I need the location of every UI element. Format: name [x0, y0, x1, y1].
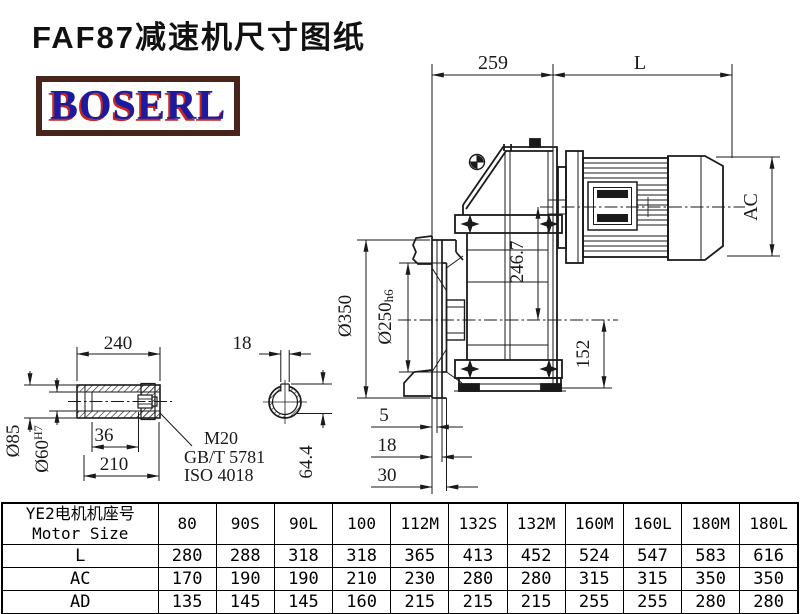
table-cell: 255 — [623, 591, 681, 614]
table-cell: 413 — [449, 545, 507, 568]
dim-step-5: 5 — [379, 405, 389, 426]
column-header: 160M — [565, 503, 623, 545]
table-corner-header: YE2电机机座号Motor Size — [2, 503, 158, 545]
header-en: Motor Size — [3, 524, 158, 544]
table-cell: 280 — [682, 591, 740, 614]
dim-210: 210 — [100, 454, 129, 475]
row-header: AC — [2, 568, 158, 591]
table-cell: 616 — [740, 545, 798, 568]
dim-246-7: 246.7 — [507, 241, 528, 284]
dim-step-30: 30 — [378, 465, 397, 486]
column-header: 132M — [507, 503, 565, 545]
table-cell: 315 — [623, 568, 681, 591]
dim-bore: Ø60H7 — [31, 425, 53, 472]
table-cell: 160 — [333, 591, 391, 614]
dim-step-18: 18 — [378, 435, 397, 456]
table-cell: 280 — [449, 568, 507, 591]
table-cell: 210 — [333, 568, 391, 591]
column-header: 90L — [274, 503, 332, 545]
row-header: L — [2, 545, 158, 568]
table-cell: 215 — [391, 591, 449, 614]
table-cell: 452 — [507, 545, 565, 568]
table-row: AC170190190210230280280315315350350 — [2, 568, 798, 591]
table-cell: 583 — [682, 545, 740, 568]
dim-sleeve-od: Ø85 — [3, 425, 24, 458]
table-cell: 350 — [682, 568, 740, 591]
table-cell: 318 — [333, 545, 391, 568]
table-cell: 280 — [740, 591, 798, 614]
dim-259: 259 — [478, 52, 508, 74]
table-cell: 135 — [158, 591, 216, 614]
dim-spigot: Ø250h6 — [375, 289, 396, 345]
table-cell: 170 — [158, 568, 216, 591]
dim-AC: AC — [740, 193, 762, 221]
dim-key-width: 18 — [233, 333, 252, 354]
dim-L: L — [634, 52, 646, 74]
column-header: 160L — [623, 503, 681, 545]
table-cell: 145 — [216, 591, 274, 614]
shaft-cross-section — [263, 380, 307, 424]
dimension-labels: 259 L AC 246.7 152 Ø350 Ø250h6 5 18 30 2… — [3, 52, 762, 486]
column-header: 132S — [449, 503, 507, 545]
table-cell: 315 — [565, 568, 623, 591]
table-cell: 350 — [740, 568, 798, 591]
motor-terminal-box — [588, 182, 637, 230]
table-cell: 230 — [391, 568, 449, 591]
column-header: 100 — [333, 503, 391, 545]
table-cell: 288 — [216, 545, 274, 568]
table-cell: 365 — [391, 545, 449, 568]
column-header: 90S — [216, 503, 274, 545]
table-cell: 255 — [565, 591, 623, 614]
table-row: AD135145145160215215215255255280280 — [2, 591, 798, 614]
table-cell: 215 — [449, 591, 507, 614]
table-cell: 547 — [623, 545, 681, 568]
row-header: AD — [2, 591, 158, 614]
table-row: L280288318318365413452524547583616 — [2, 545, 798, 568]
table-cell: 280 — [158, 545, 216, 568]
dim-flange-od: Ø350 — [335, 295, 356, 337]
label-screw-std-gb: GB/T 5781 — [184, 447, 265, 467]
table-header-row: YE2电机机座号Motor Size8090S90L100112M132S132… — [2, 503, 798, 545]
table-cell: 190 — [216, 568, 274, 591]
column-header: 180L — [740, 503, 798, 545]
dimension-lines — [24, 64, 780, 494]
label-screw: M20 — [204, 428, 238, 448]
dim-240: 240 — [104, 333, 133, 354]
table-cell: 215 — [507, 591, 565, 614]
dim-64-4: 64.4 — [296, 445, 317, 479]
shaft-sleeve-detail — [68, 384, 192, 447]
table-cell: 145 — [274, 591, 332, 614]
label-screw-std-iso: ISO 4018 — [184, 465, 254, 485]
column-header: 80 — [158, 503, 216, 545]
header-cn: YE2电机机座号 — [3, 504, 158, 524]
dim-36: 36 — [95, 425, 114, 446]
table-cell: 318 — [274, 545, 332, 568]
table-cell: 524 — [565, 545, 623, 568]
table-cell: 280 — [507, 568, 565, 591]
motor-size-table: YE2电机机座号Motor Size8090S90L100112M132S132… — [1, 502, 799, 614]
dim-152: 152 — [573, 340, 594, 369]
column-header: 180M — [682, 503, 740, 545]
column-header: 112M — [391, 503, 449, 545]
drawing-sheet: FAF87减速机尺寸图纸 BOSERL — [0, 0, 800, 614]
table-cell: 190 — [274, 568, 332, 591]
